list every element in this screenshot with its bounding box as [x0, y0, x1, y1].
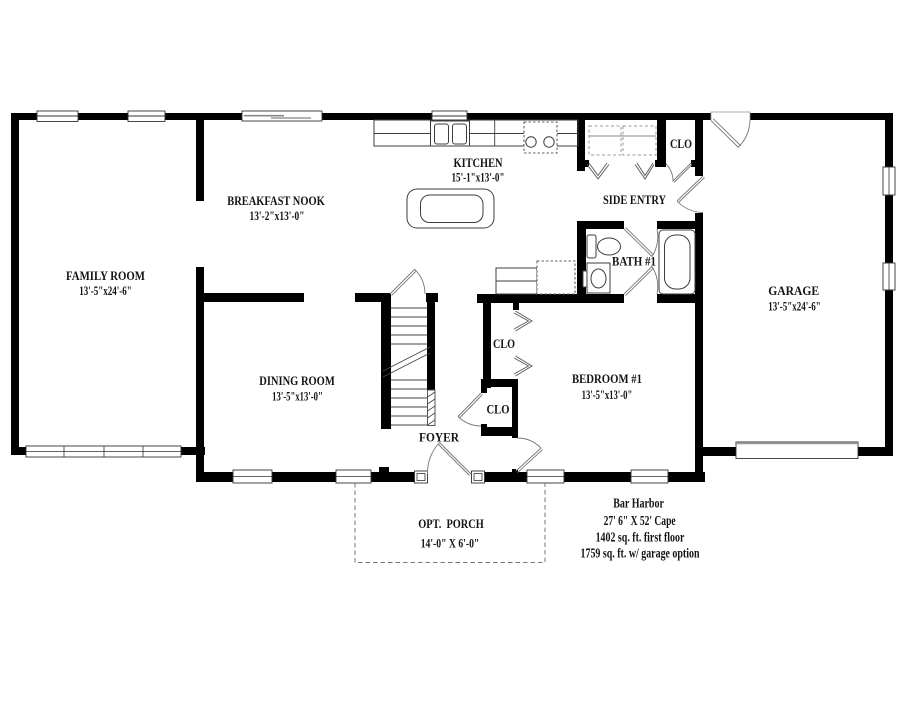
svg-text:13'-5"x13'-0": 13'-5"x13'-0" — [272, 388, 323, 403]
svg-text:DINING ROOM: DINING ROOM — [259, 373, 335, 388]
svg-text:Bar Harbor: Bar Harbor — [613, 496, 664, 511]
svg-text:GARAGE: GARAGE — [768, 283, 819, 298]
svg-text:14'-0" X 6'-0": 14'-0" X 6'-0" — [421, 536, 480, 551]
svg-text:27' 6" X 52' Cape: 27' 6" X 52' Cape — [604, 513, 676, 528]
svg-text:CLO: CLO — [670, 136, 692, 151]
svg-text:1759 sq. ft. w/ garage option: 1759 sq. ft. w/ garage option — [581, 546, 700, 561]
svg-text:SIDE ENTRY: SIDE ENTRY — [603, 192, 666, 207]
svg-text:13'-2"x13'-0": 13'-2"x13'-0" — [250, 208, 305, 223]
svg-text:FAMILY ROOM: FAMILY ROOM — [66, 268, 145, 283]
svg-text:1402 sq. ft. first floor: 1402 sq. ft. first floor — [596, 530, 685, 545]
svg-text:15'-1"x13'-0": 15'-1"x13'-0" — [452, 170, 505, 185]
svg-text:13'-5"x24'-6": 13'-5"x24'-6" — [79, 283, 132, 298]
svg-text:CLO: CLO — [487, 402, 510, 417]
svg-text:BREAKFAST NOOK: BREAKFAST NOOK — [227, 193, 325, 208]
svg-text:13'-5"x24'-6": 13'-5"x24'-6" — [768, 299, 821, 314]
svg-text:13'-5"x13'-0": 13'-5"x13'-0" — [582, 387, 633, 402]
svg-text:KITCHEN: KITCHEN — [454, 155, 503, 170]
svg-text:BEDROOM #1: BEDROOM #1 — [572, 371, 642, 386]
svg-text:CLO: CLO — [493, 336, 515, 351]
svg-text:OPT. PORCH: OPT. PORCH — [418, 516, 484, 531]
svg-text:BATH #1: BATH #1 — [612, 254, 656, 269]
svg-text:FOYER: FOYER — [419, 430, 460, 445]
